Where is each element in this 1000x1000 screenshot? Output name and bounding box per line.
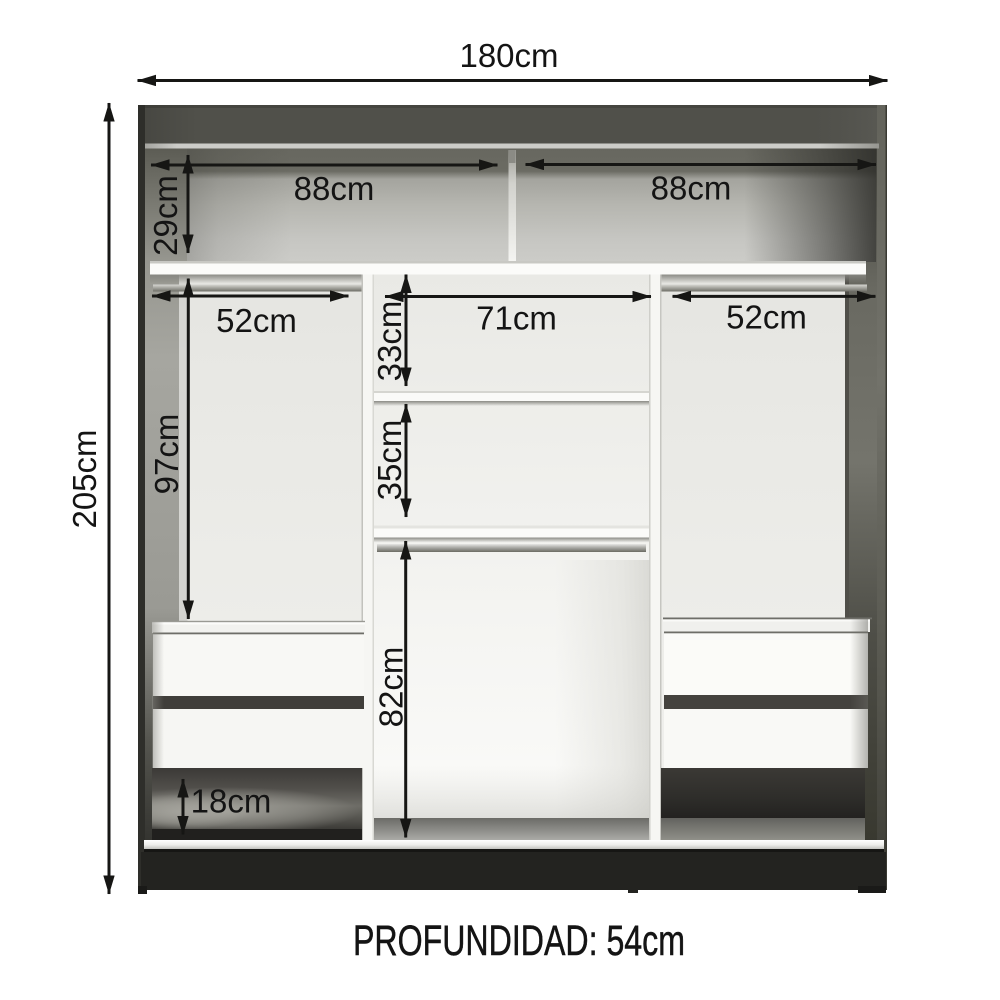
- svg-text:35cm: 35cm: [371, 420, 408, 501]
- svg-text:33cm: 33cm: [371, 301, 408, 382]
- svg-text:PROFUNDIDAD: 54cm: PROFUNDIDAD: 54cm: [353, 917, 685, 965]
- svg-text:97cm: 97cm: [148, 414, 185, 495]
- svg-text:180cm: 180cm: [459, 37, 558, 74]
- svg-text:88cm: 88cm: [294, 170, 375, 207]
- svg-text:52cm: 52cm: [726, 299, 807, 336]
- svg-text:29cm: 29cm: [147, 175, 184, 256]
- svg-text:82cm: 82cm: [373, 647, 410, 728]
- svg-text:52cm: 52cm: [216, 302, 297, 339]
- svg-text:18cm: 18cm: [191, 783, 272, 820]
- svg-text:71cm: 71cm: [476, 300, 557, 337]
- svg-text:88cm: 88cm: [651, 170, 732, 207]
- svg-text:205cm: 205cm: [66, 429, 103, 528]
